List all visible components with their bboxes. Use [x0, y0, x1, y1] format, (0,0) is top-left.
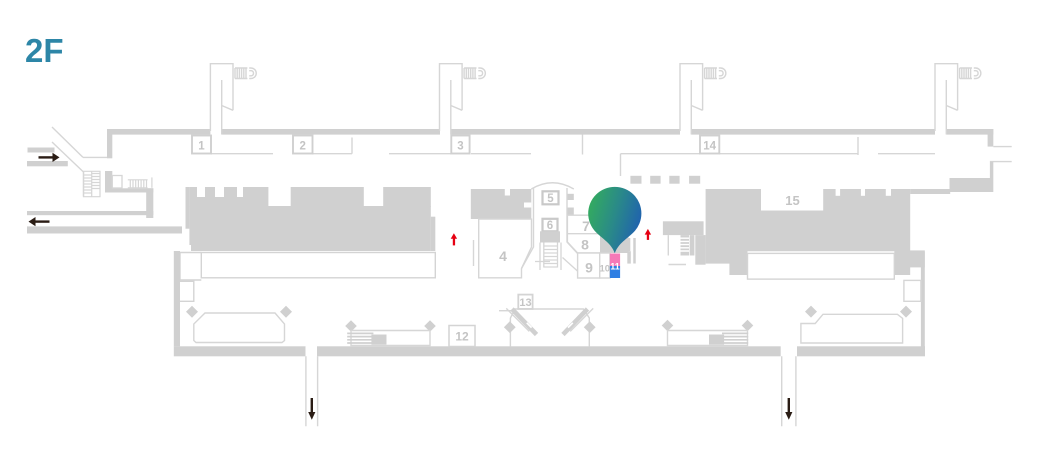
svg-text:13: 13	[519, 297, 531, 309]
svg-text:14: 14	[703, 141, 716, 153]
svg-text:11: 11	[610, 262, 620, 272]
svg-text:5: 5	[547, 193, 554, 205]
svg-text:4: 4	[499, 248, 507, 264]
svg-text:7: 7	[582, 218, 590, 234]
svg-text:12: 12	[455, 330, 469, 344]
svg-text:10: 10	[600, 264, 611, 275]
svg-text:1: 1	[198, 141, 205, 153]
svg-text:9: 9	[585, 260, 593, 276]
svg-text:2: 2	[299, 141, 305, 153]
svg-text:15: 15	[785, 193, 799, 208]
svg-text:8: 8	[581, 237, 589, 253]
svg-text:6: 6	[547, 220, 553, 232]
svg-text:2F: 2F	[25, 32, 64, 69]
svg-text:3: 3	[457, 141, 463, 153]
